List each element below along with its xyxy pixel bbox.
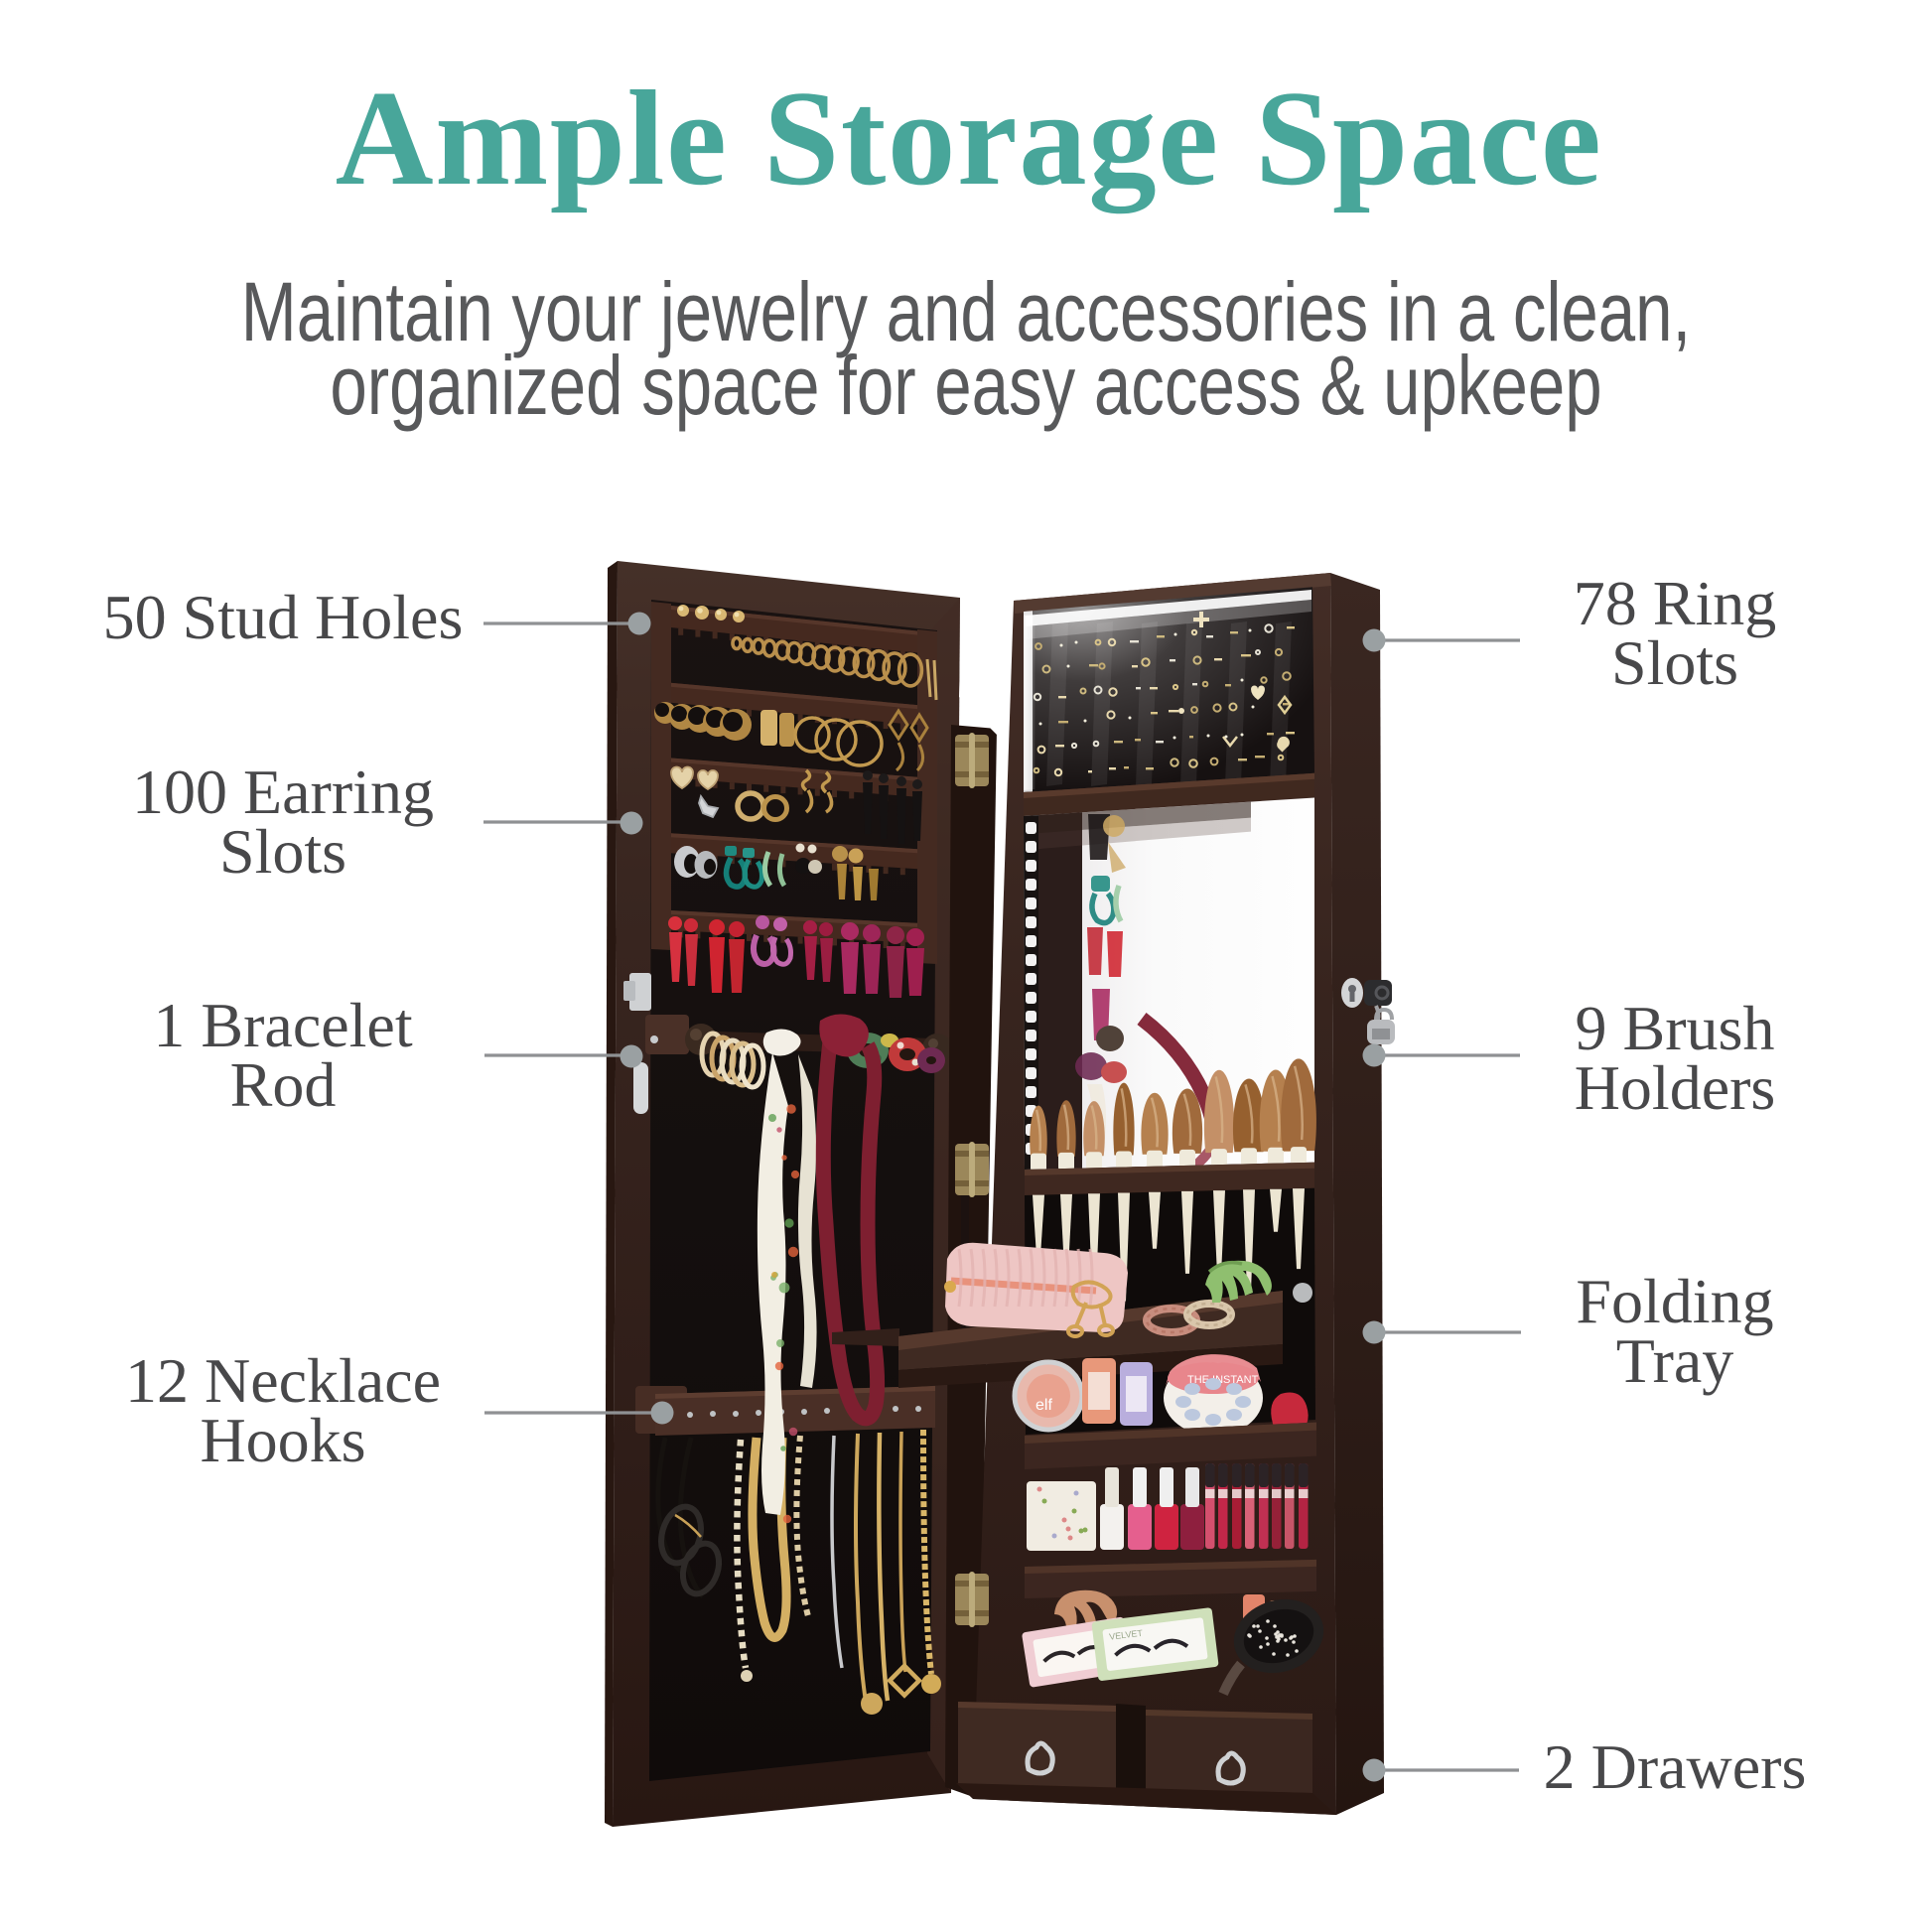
svg-text:elf: elf [1035, 1397, 1052, 1414]
svg-text:THE INSTANT: THE INSTANT [1187, 1374, 1259, 1386]
